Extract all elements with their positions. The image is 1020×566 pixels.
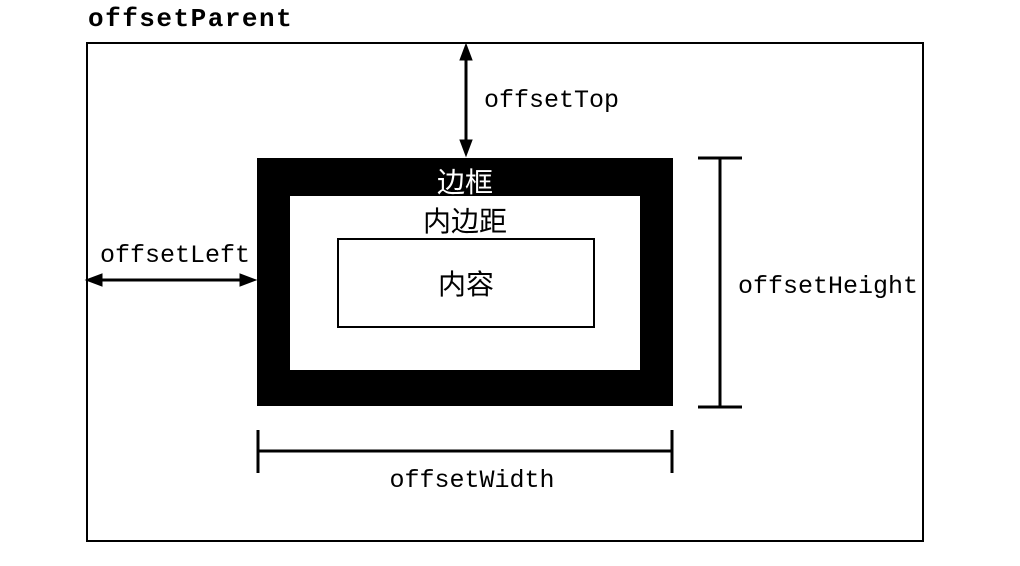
offset-width-label: offsetWidth [257,466,687,495]
content-label: 内容 [438,263,494,303]
offset-dimensions-diagram: offsetParent 内容 边框 内边距 [0,0,1020,566]
offset-left-label: offsetLeft [100,241,250,270]
offset-top-label: offsetTop [484,86,619,115]
offset-height-label: offsetHeight [738,272,918,301]
border-label: 边框 [257,161,673,201]
padding-label: 内边距 [290,200,640,240]
content-box: 内容 [337,238,595,328]
offset-parent-title: offsetParent [88,4,293,34]
